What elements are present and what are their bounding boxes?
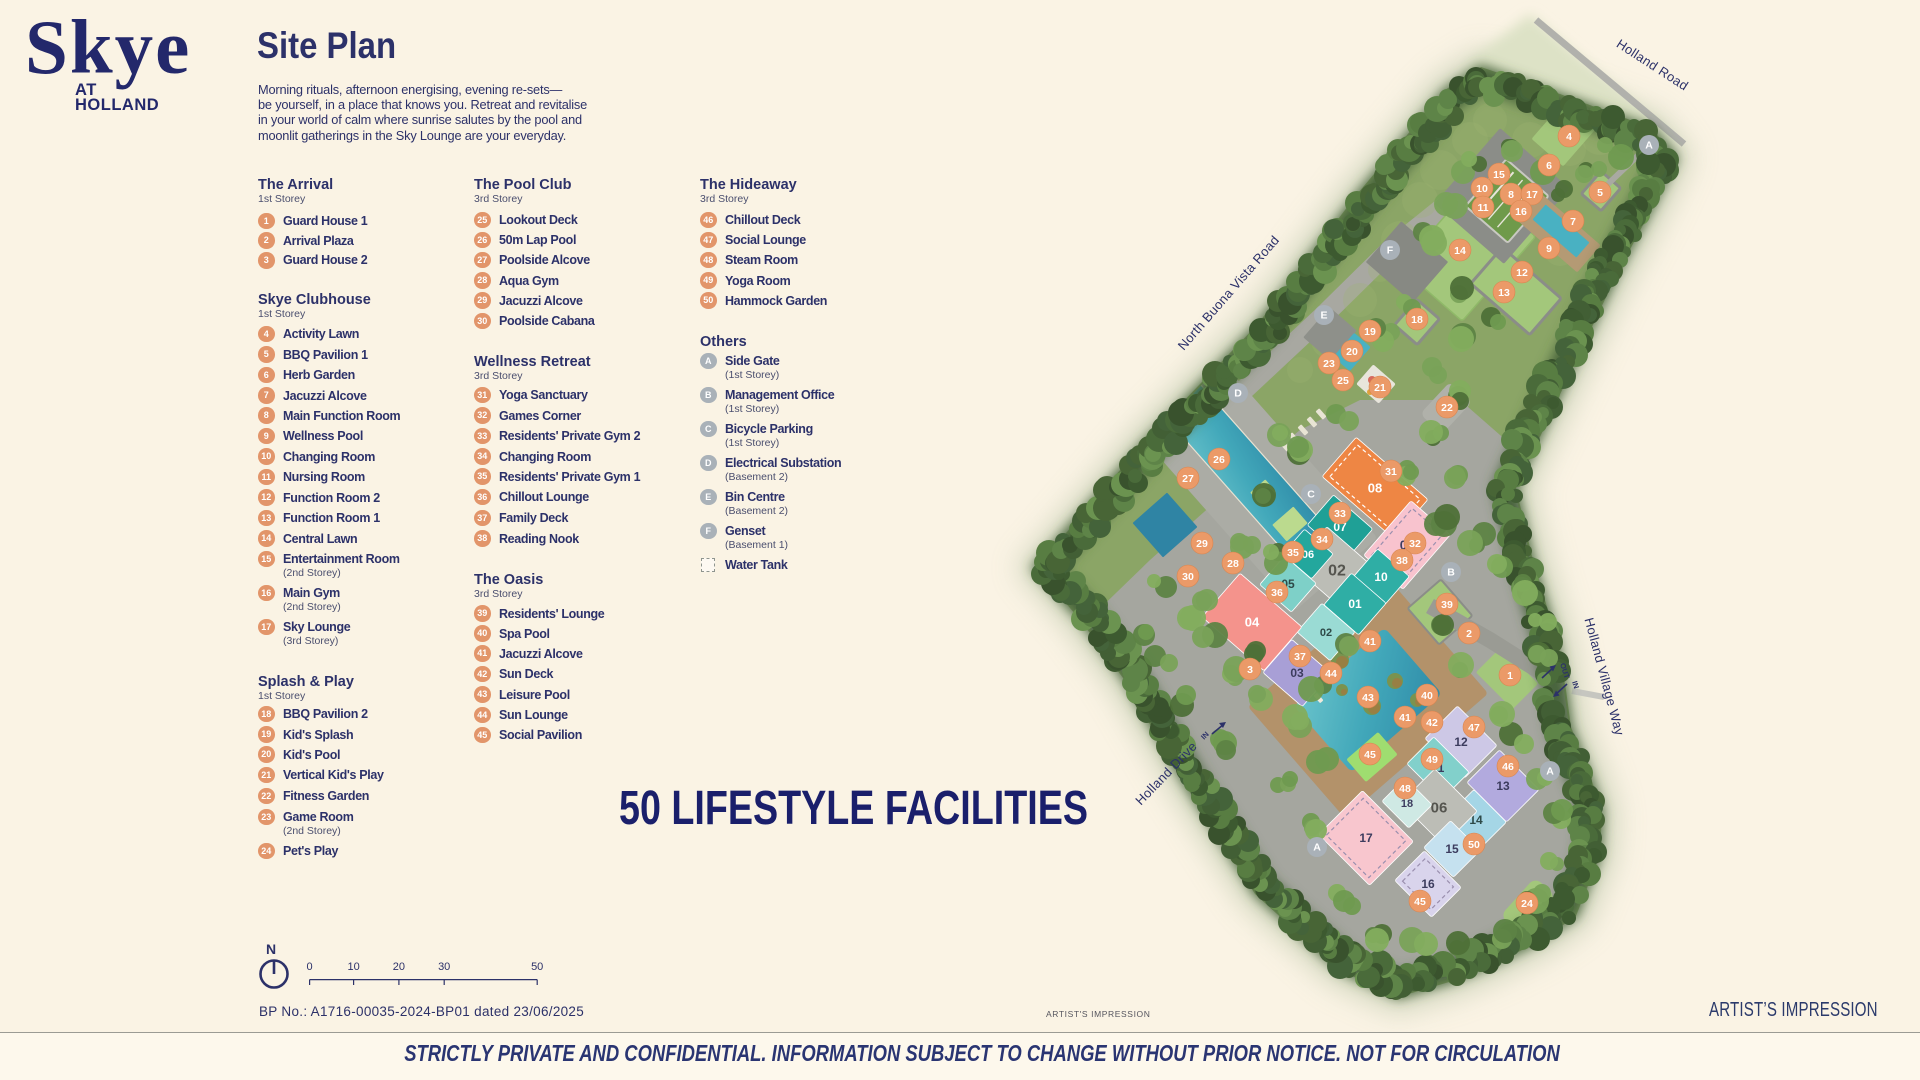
svg-text:D: D — [1234, 388, 1242, 400]
svg-text:8: 8 — [1508, 189, 1514, 201]
svg-text:19: 19 — [1364, 326, 1376, 338]
svg-text:37: 37 — [1294, 651, 1306, 663]
svg-text:A: A — [1645, 140, 1653, 152]
svg-text:49: 49 — [1426, 754, 1438, 766]
svg-text:04: 04 — [1245, 615, 1260, 630]
svg-text:42: 42 — [1426, 717, 1438, 729]
svg-text:30: 30 — [438, 961, 450, 973]
svg-text:48: 48 — [1399, 783, 1411, 795]
svg-text:12: 12 — [1454, 735, 1468, 749]
svg-text:44: 44 — [1325, 668, 1337, 680]
svg-text:13: 13 — [1498, 287, 1510, 299]
svg-text:39: 39 — [1441, 599, 1453, 611]
svg-text:2: 2 — [1466, 628, 1472, 640]
svg-text:15: 15 — [1445, 842, 1459, 856]
svg-text:6: 6 — [1546, 160, 1552, 172]
svg-text:E: E — [1320, 310, 1327, 322]
svg-text:41: 41 — [1364, 636, 1376, 648]
svg-text:18: 18 — [1401, 798, 1413, 810]
svg-text:20: 20 — [393, 961, 405, 973]
svg-text:14: 14 — [1454, 245, 1466, 257]
svg-text:46: 46 — [1502, 761, 1514, 773]
svg-text:45: 45 — [1364, 749, 1376, 761]
svg-text:36: 36 — [1271, 587, 1283, 599]
svg-text:43: 43 — [1362, 692, 1374, 704]
svg-text:50: 50 — [1468, 839, 1480, 851]
svg-text:OUT: OUT — [1558, 662, 1572, 680]
svg-text:17: 17 — [1359, 831, 1373, 845]
svg-text:29: 29 — [1196, 538, 1208, 550]
svg-text:20: 20 — [1346, 346, 1358, 358]
svg-text:50: 50 — [531, 961, 543, 973]
svg-text:16: 16 — [1515, 206, 1527, 218]
svg-text:18: 18 — [1411, 314, 1423, 326]
svg-text:47: 47 — [1468, 722, 1480, 734]
svg-text:28: 28 — [1227, 558, 1239, 570]
svg-text:16: 16 — [1421, 877, 1435, 891]
svg-text:12: 12 — [1516, 267, 1528, 279]
svg-text:06: 06 — [1431, 799, 1448, 816]
svg-text:0: 0 — [307, 961, 313, 973]
svg-text:41: 41 — [1399, 712, 1411, 724]
svg-text:23: 23 — [1323, 358, 1335, 370]
svg-text:B: B — [1447, 567, 1455, 579]
svg-text:15: 15 — [1493, 169, 1505, 181]
svg-text:24: 24 — [1521, 898, 1533, 910]
svg-text:IN: IN — [1570, 680, 1581, 690]
svg-text:21: 21 — [1374, 382, 1386, 394]
svg-text:03: 03 — [1290, 666, 1304, 680]
svg-text:35: 35 — [1287, 547, 1299, 559]
svg-text:40: 40 — [1421, 690, 1433, 702]
svg-text:17: 17 — [1526, 189, 1538, 201]
svg-text:32: 32 — [1409, 538, 1421, 550]
svg-text:31: 31 — [1385, 466, 1397, 478]
svg-text:13: 13 — [1496, 779, 1510, 793]
svg-text:5: 5 — [1597, 187, 1603, 199]
svg-text:10: 10 — [347, 961, 359, 973]
svg-text:C: C — [1307, 489, 1315, 501]
svg-text:38: 38 — [1396, 555, 1408, 567]
svg-text:45: 45 — [1414, 896, 1426, 908]
svg-text:A: A — [1546, 766, 1554, 778]
svg-text:27: 27 — [1182, 473, 1194, 485]
svg-text:4: 4 — [1566, 131, 1572, 143]
svg-text:7: 7 — [1570, 216, 1576, 228]
svg-text:3: 3 — [1247, 664, 1253, 676]
svg-text:08: 08 — [1368, 481, 1382, 496]
svg-text:F: F — [1387, 245, 1394, 257]
svg-text:02: 02 — [1320, 627, 1332, 639]
svg-text:26: 26 — [1213, 454, 1225, 466]
svg-text:34: 34 — [1316, 534, 1328, 546]
svg-text:1: 1 — [1507, 670, 1513, 682]
svg-text:IN: IN — [1199, 730, 1211, 742]
svg-text:9: 9 — [1546, 243, 1552, 255]
svg-text:11: 11 — [1477, 202, 1488, 214]
svg-text:10: 10 — [1374, 570, 1388, 584]
svg-text:10: 10 — [1476, 183, 1488, 195]
svg-text:33: 33 — [1334, 508, 1346, 520]
svg-text:22: 22 — [1441, 402, 1453, 414]
svg-text:A: A — [1313, 842, 1321, 854]
svg-text:30: 30 — [1182, 571, 1194, 583]
svg-text:02: 02 — [1328, 563, 1346, 580]
svg-text:25: 25 — [1337, 375, 1349, 387]
svg-text:01: 01 — [1348, 597, 1362, 611]
